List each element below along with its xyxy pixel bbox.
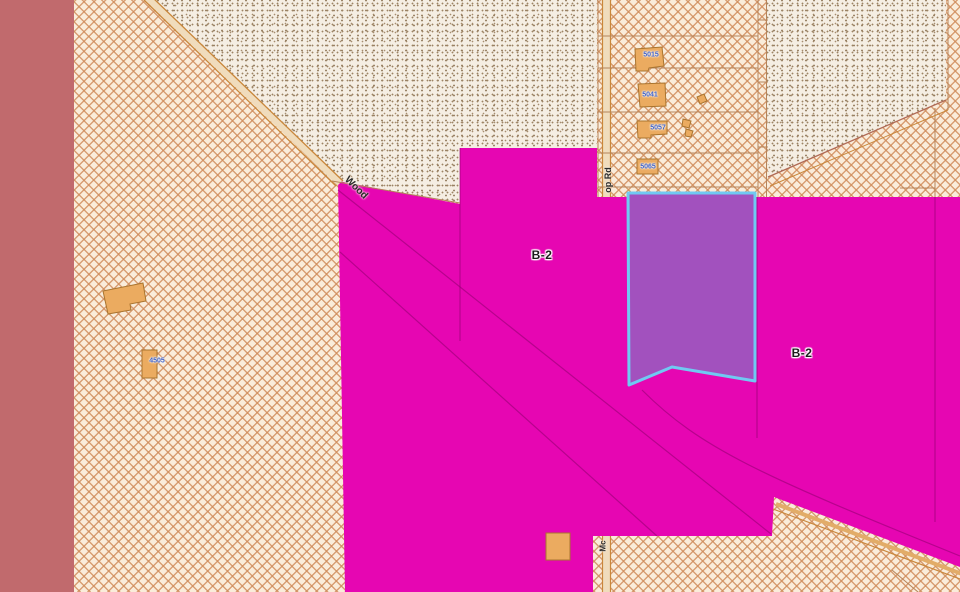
zone-label-b2-right: B-2 xyxy=(792,346,813,360)
road-label-op-rd: op Rd xyxy=(603,167,613,193)
parcel-address-label: 5041 xyxy=(642,92,658,99)
parcel-address-label: 5057 xyxy=(650,125,666,132)
parcel-address-label: 5015 xyxy=(643,52,659,59)
zone-label-b2-center: B-2 xyxy=(532,248,553,262)
parcel-address-label: 4505 xyxy=(149,358,165,365)
stipple-boundary-lines xyxy=(768,100,948,186)
road-wood xyxy=(144,0,343,186)
selected-parcel[interactable] xyxy=(628,193,755,385)
building-footprint xyxy=(685,129,693,137)
zoning-map-canvas[interactable]: B-2 B-2 Wood op Rd Mc 5015 5041 5057 506… xyxy=(0,0,960,592)
building-footprint xyxy=(546,533,570,560)
building-footprint xyxy=(697,94,707,104)
parcel-address-label: 5065 xyxy=(640,164,656,171)
road-label-mc: Mc xyxy=(599,540,608,551)
building-footprint xyxy=(103,283,146,314)
map-vector-layer xyxy=(0,0,960,592)
building-footprint xyxy=(682,119,691,128)
